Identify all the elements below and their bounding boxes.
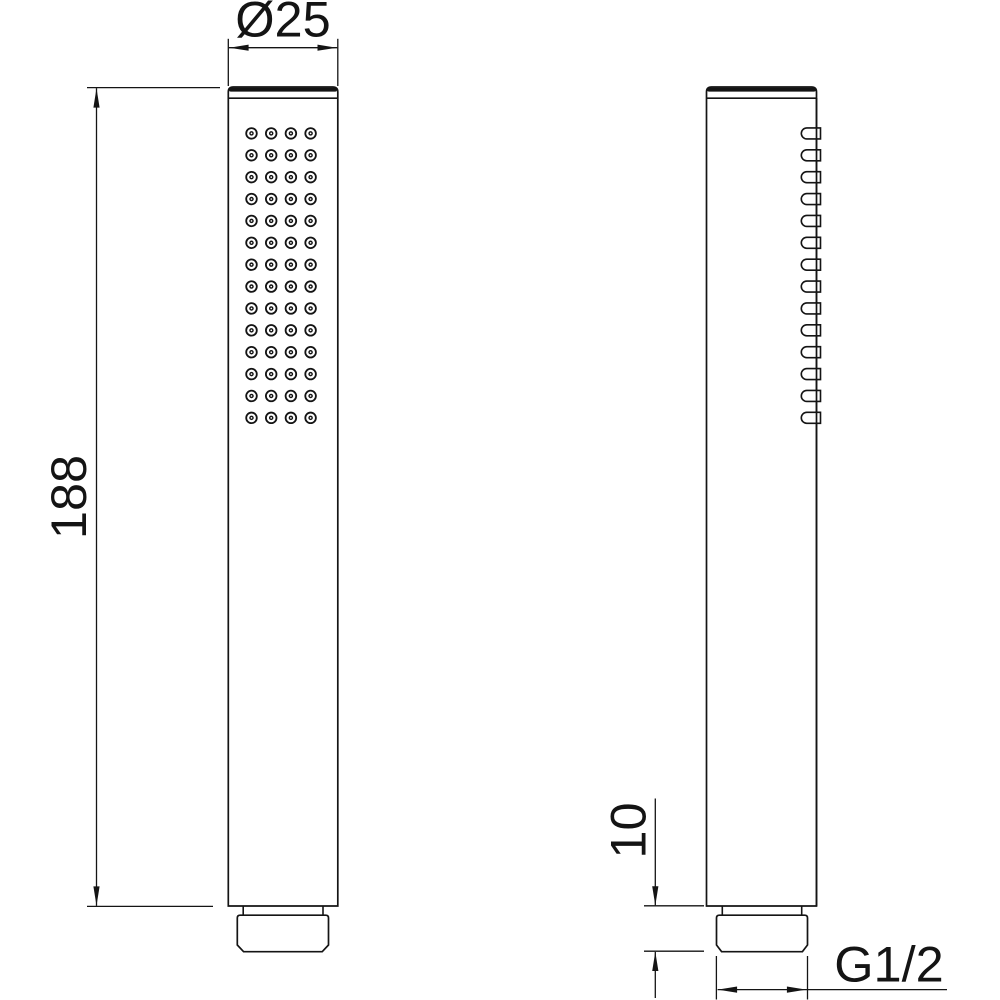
svg-text:188: 188	[40, 455, 97, 539]
svg-text:10: 10	[599, 802, 656, 858]
svg-text:G1/2: G1/2	[834, 936, 943, 993]
svg-text:Ø25: Ø25	[235, 0, 330, 48]
